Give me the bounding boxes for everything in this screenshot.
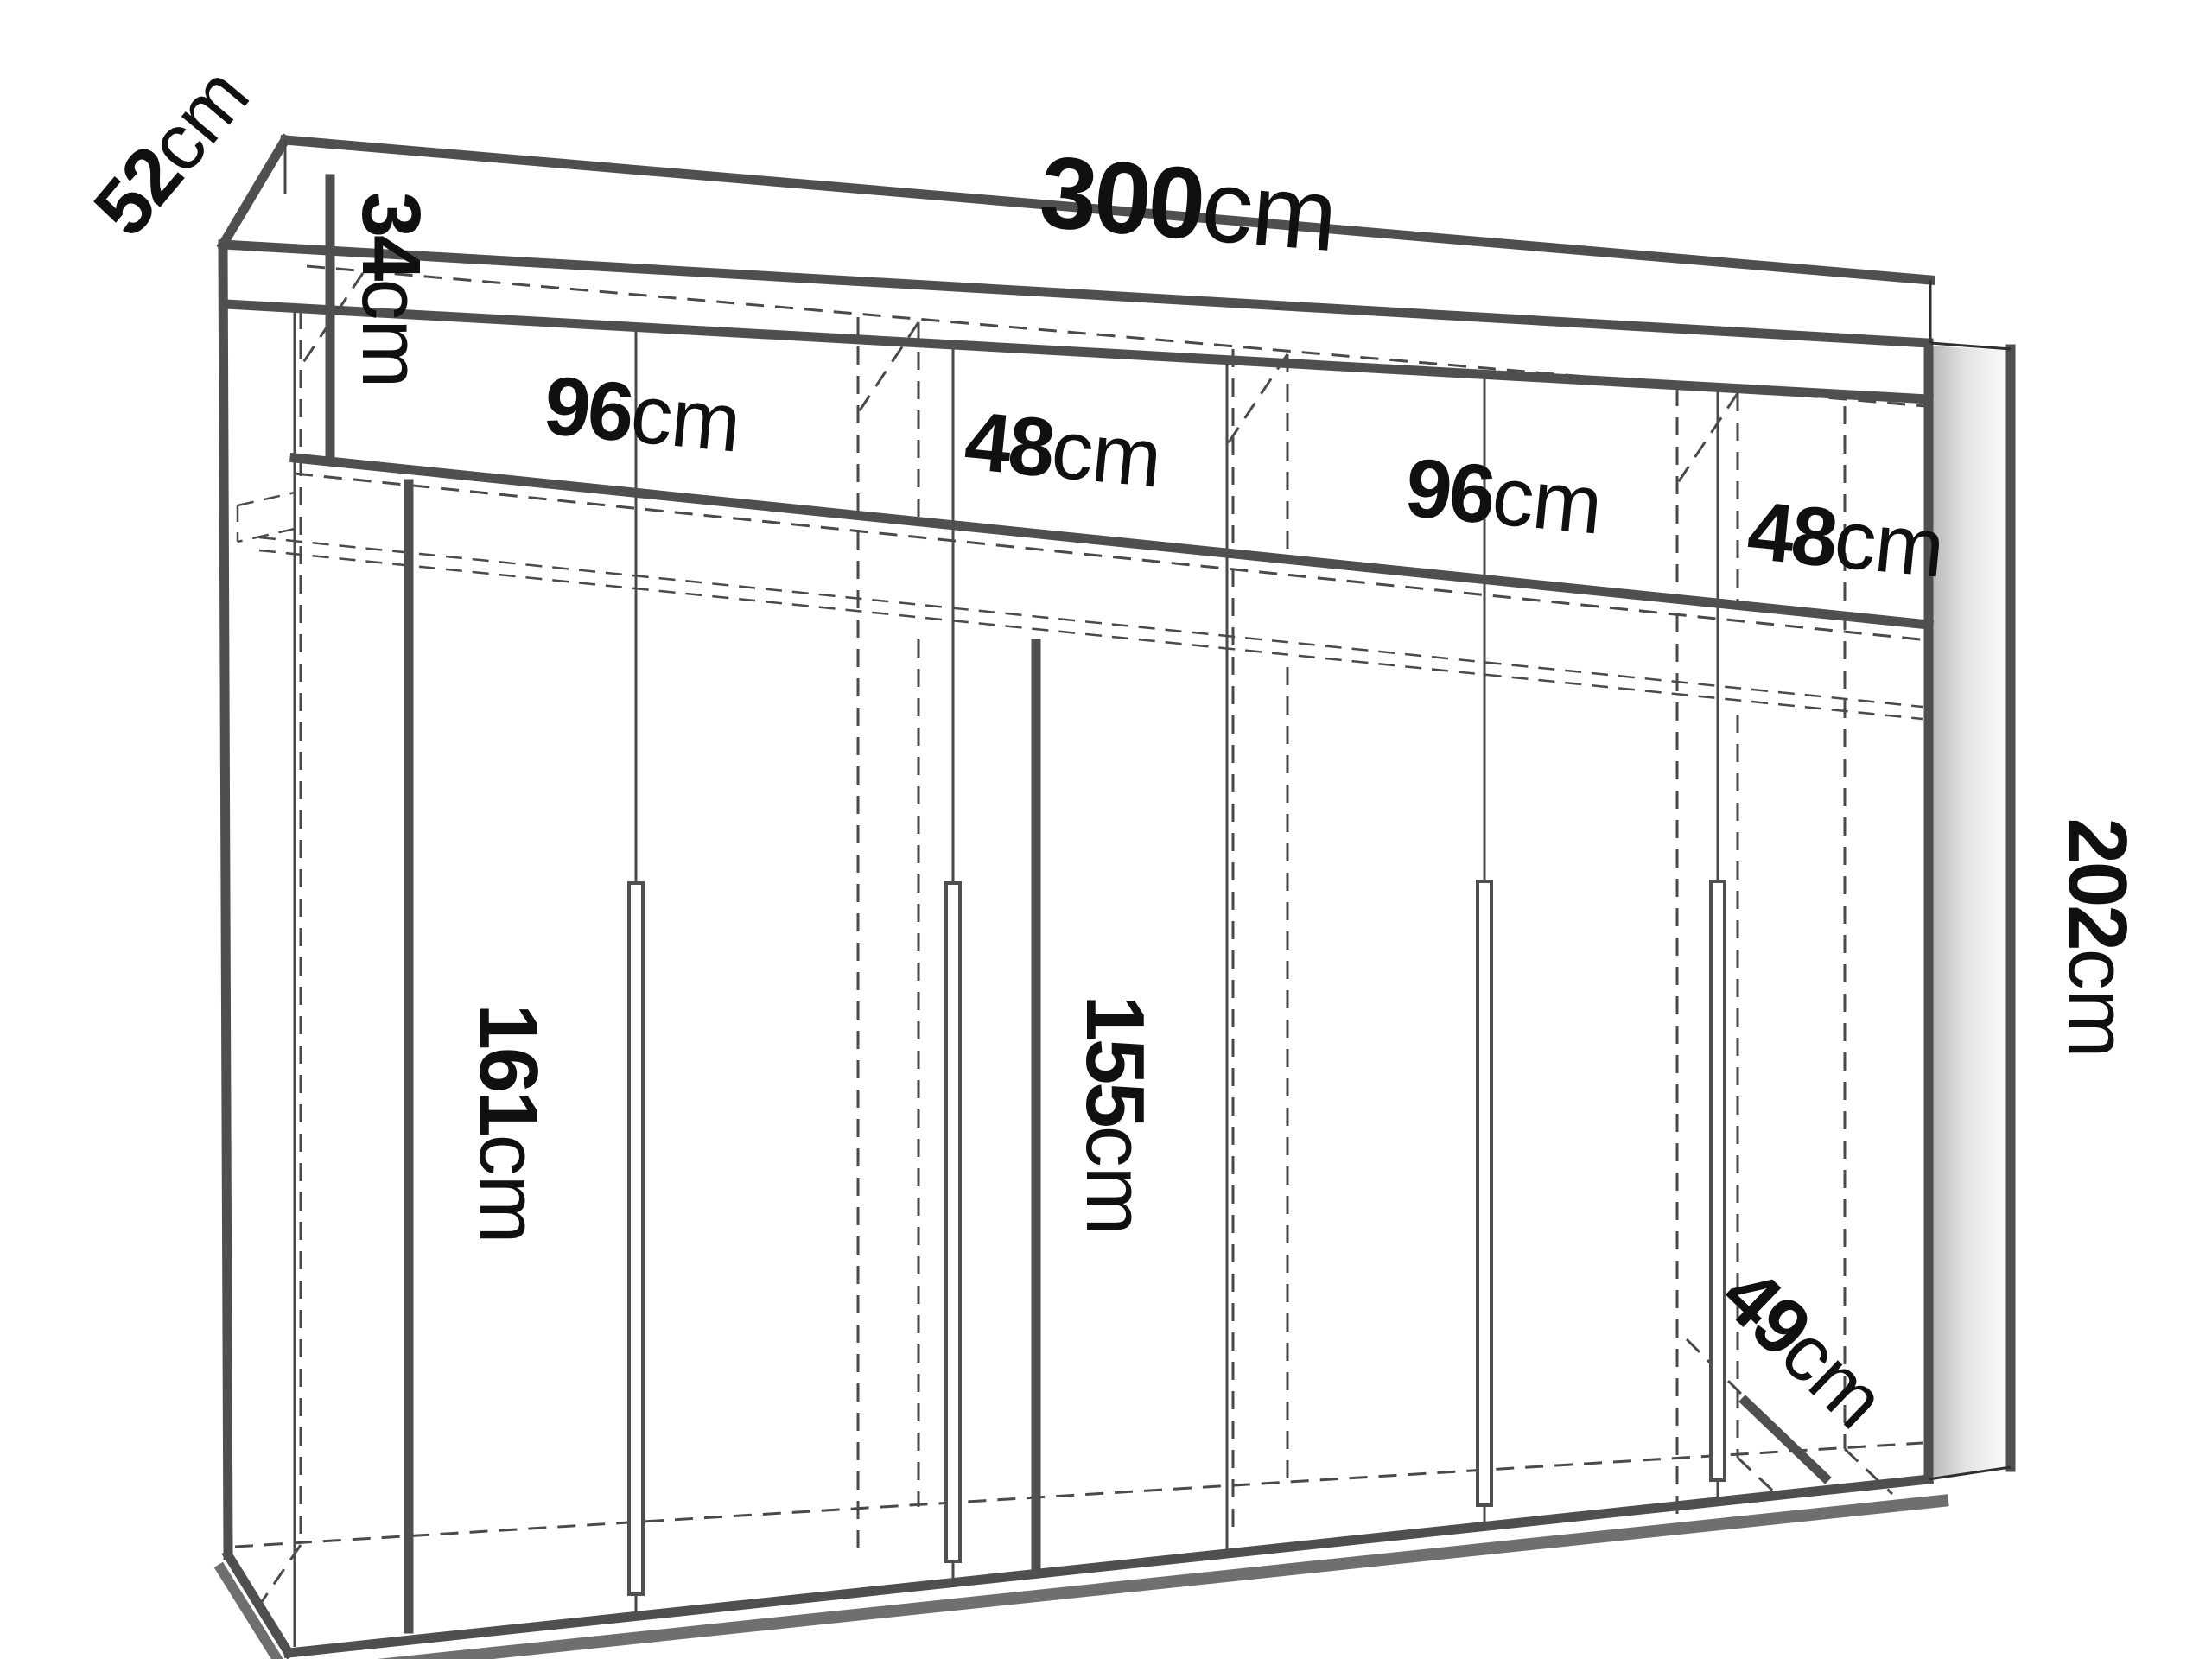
door-handle: [1711, 881, 1725, 1480]
label-width-section-3: 96cm: [1402, 442, 1605, 552]
wardrobe-diagram: 52cm 300cm 34cm 96cm 48cm 96cm 48cm 161c…: [0, 0, 2212, 1659]
doors-top-edge: [226, 304, 1929, 399]
front-left-edge: [223, 245, 228, 1555]
label-depth-bottom: 49cm: [1705, 1251, 1901, 1445]
wardrobe-drawing: 52cm 300cm 34cm 96cm 48cm 96cm 48cm 161c…: [0, 0, 2212, 1659]
front-bottom-edge: [289, 1479, 1929, 1653]
dimension-labels: 52cm 300cm 34cm 96cm 48cm 96cm 48cm 161c…: [77, 52, 2144, 1445]
label-height-interior-left: 161cm: [462, 1003, 555, 1243]
label-height-interior-mid: 155cm: [1069, 995, 1161, 1234]
label-width-total: 300cm: [1036, 135, 1341, 273]
cabinet-outline: [223, 140, 2011, 1653]
label-height-top-section: 34cm: [345, 192, 437, 388]
label-width-section-4: 48cm: [1744, 485, 1948, 595]
door-handle: [629, 883, 643, 1594]
roof-depth-edge: [223, 140, 285, 245]
label-width-section-2: 48cm: [961, 395, 1165, 505]
label-width-section-1: 96cm: [540, 359, 744, 470]
door-handles: [629, 881, 1725, 1594]
door-handle: [946, 883, 960, 1561]
door-handle: [1478, 881, 1491, 1505]
label-height-total: 202cm: [2051, 817, 2144, 1057]
